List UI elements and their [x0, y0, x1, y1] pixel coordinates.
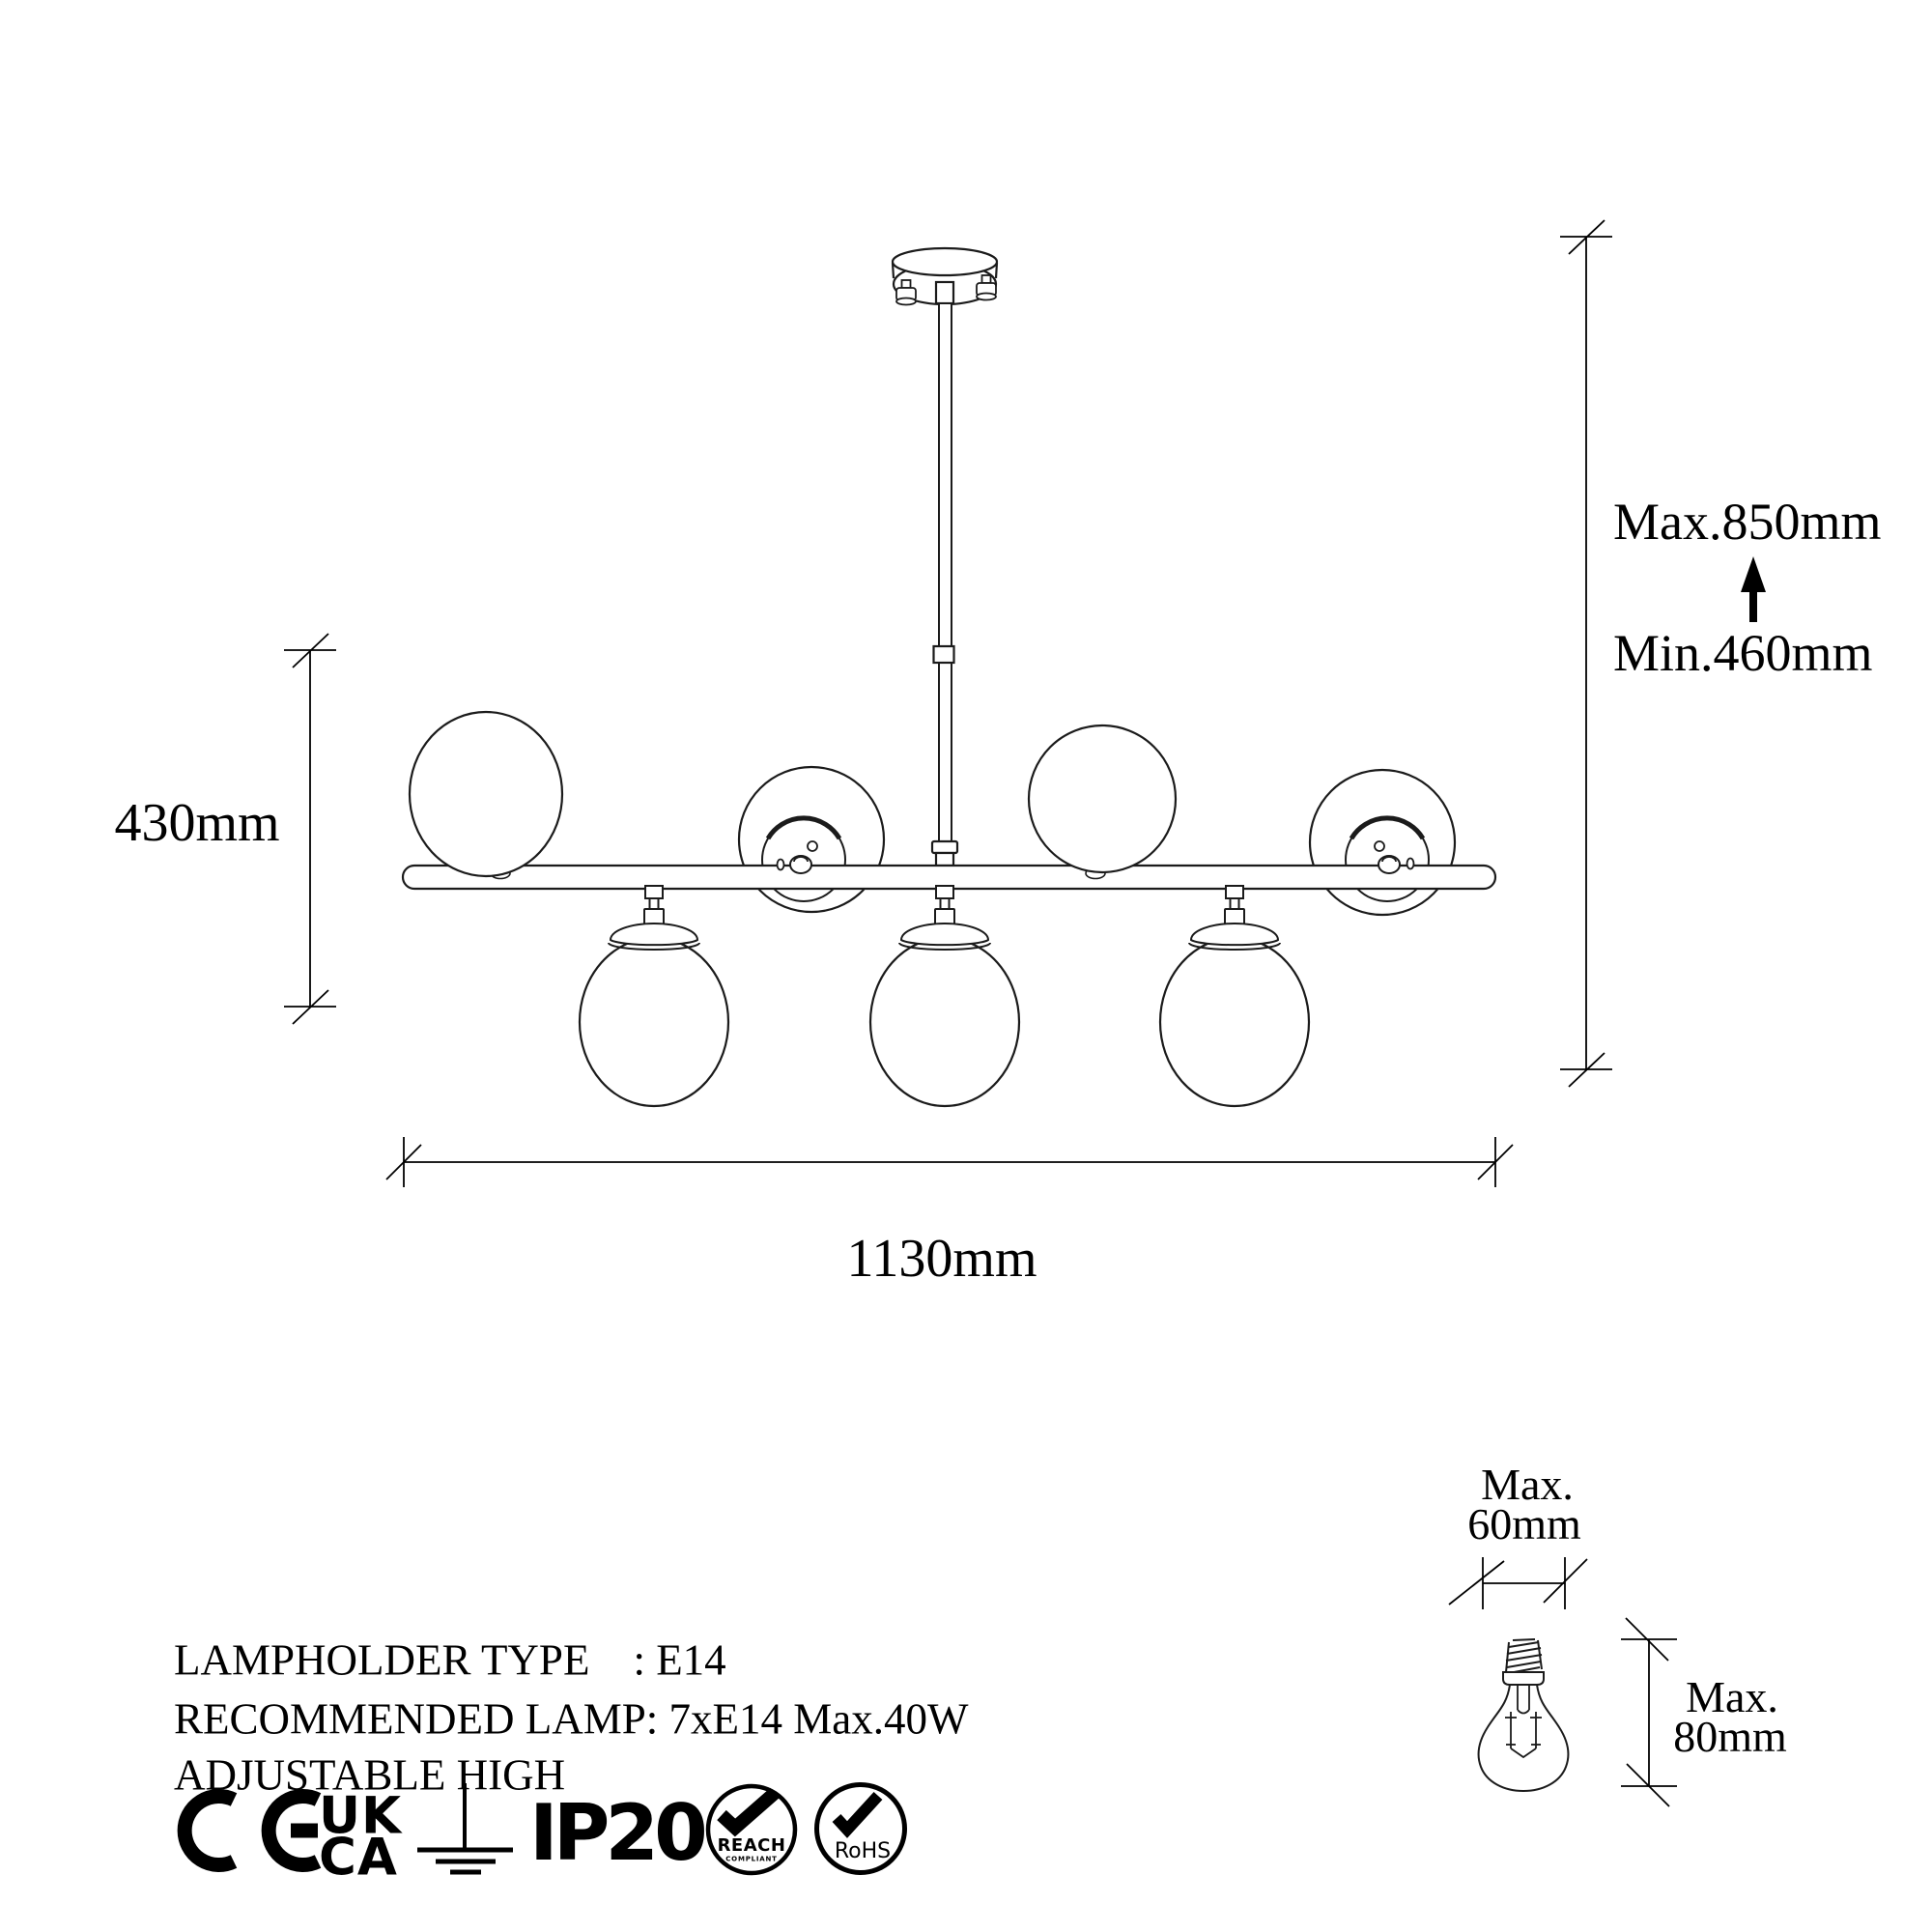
- lower-globe-right: [1160, 886, 1309, 1106]
- dim-width-label: 1130mm: [846, 1232, 1037, 1286]
- ce-mark-icon: [185, 1797, 318, 1865]
- ceiling-canopy: [893, 248, 997, 305]
- upper-globe-left: [410, 712, 562, 879]
- spec-sheet: 430mm Max.850mm Min.460mm 1130mm Max. 60…: [0, 0, 1932, 1932]
- reach-label: REACH: [718, 1837, 786, 1855]
- bulb-height-label: 80mm: [1673, 1715, 1787, 1759]
- up-arrow-icon: [1741, 556, 1766, 622]
- suspension-rod: [932, 303, 957, 866]
- reach-compliant-label: COMPLIANT: [725, 1857, 778, 1863]
- ip-rating-label: IP20: [529, 1795, 703, 1872]
- rohs-label: RoHS: [835, 1841, 891, 1862]
- bulb-diagram: [1479, 1639, 1569, 1791]
- ukca-bottom-label: CA: [319, 1833, 398, 1884]
- spec-recommended-lamp: RECOMMENDED LAMP: 7xE14 Max.40W: [174, 1698, 968, 1742]
- upper-globe-right: [1029, 725, 1176, 879]
- bulb-width-label: 60mm: [1467, 1502, 1581, 1547]
- spec-lampholder-type: LAMPHOLDER TYPE : E14: [174, 1639, 726, 1683]
- lower-globe-center: [870, 886, 1019, 1106]
- lower-globe-left: [580, 886, 728, 1106]
- upper-globe-mounted-left: [739, 767, 884, 912]
- dim-max-height-label: Max.850mm: [1613, 496, 1882, 548]
- dim-min-height-label: Min.460mm: [1613, 627, 1873, 679]
- dim-height-label: 430mm: [114, 796, 279, 850]
- dimension-lines: [284, 220, 1766, 1806]
